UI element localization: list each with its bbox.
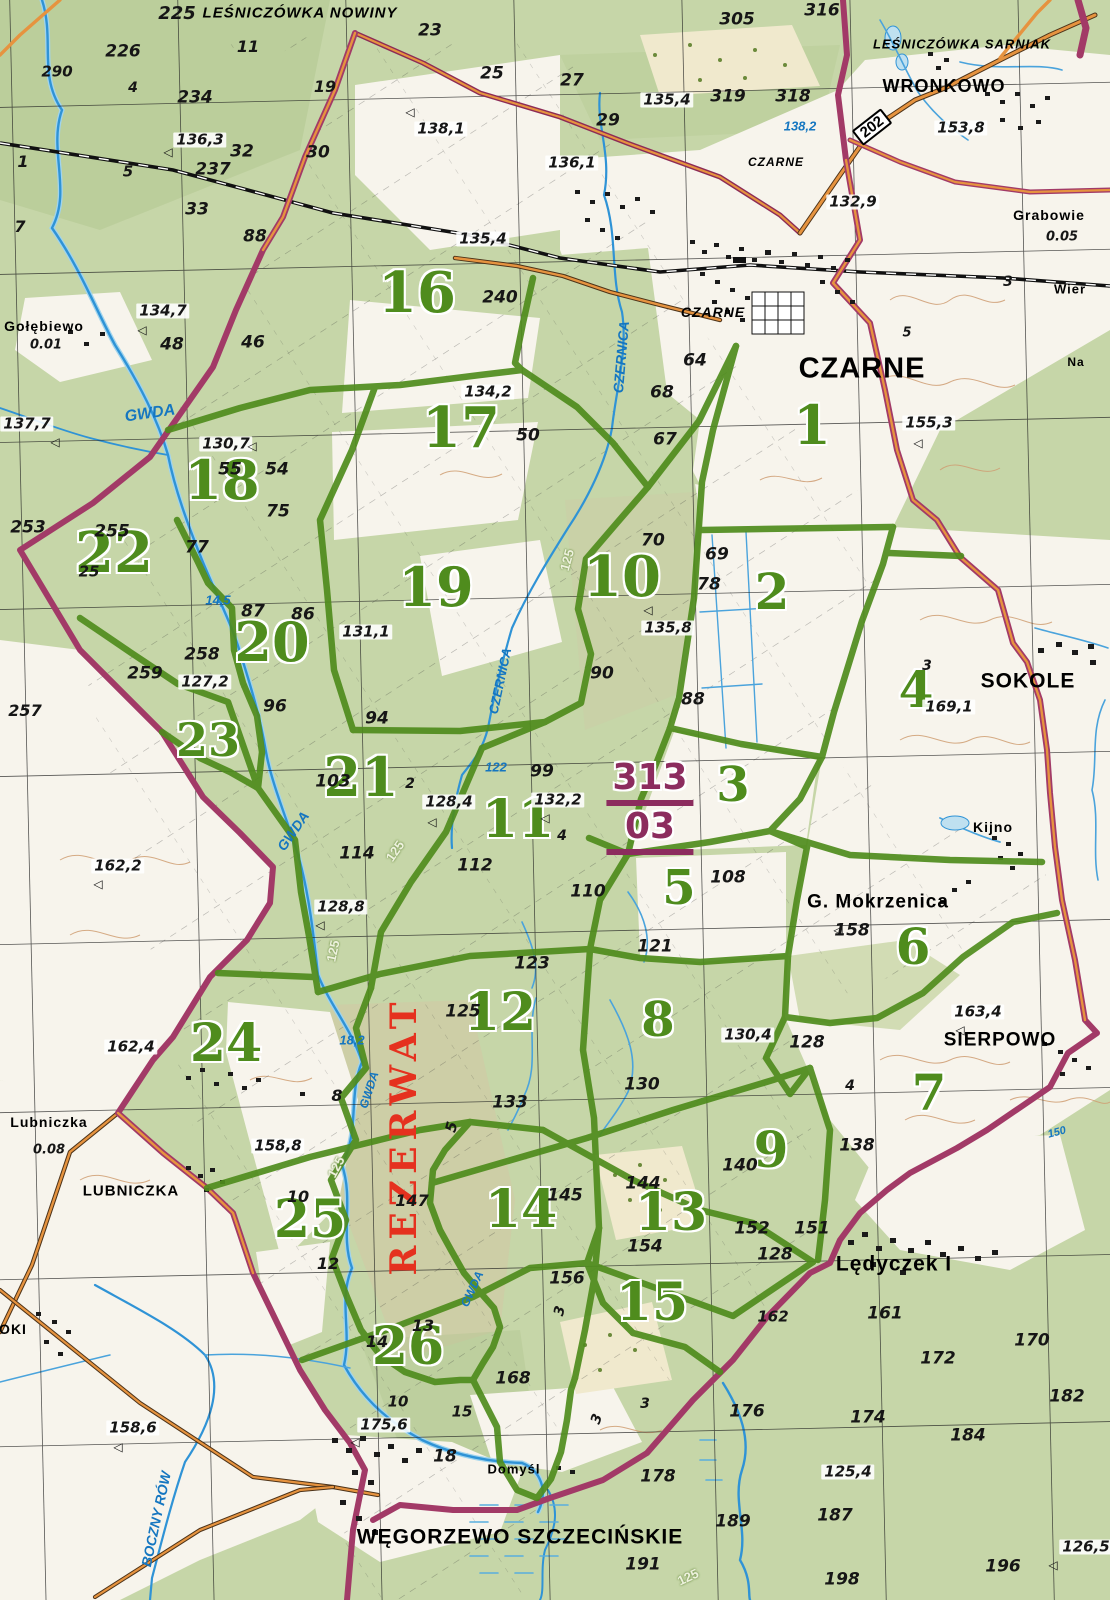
plot-number: 316 [804,3,840,20]
plot-number: 18 [433,1449,457,1466]
plot-number: ◁ [913,437,922,449]
elevation-label: 132,9 [826,195,879,210]
plot-number: 27 [560,73,584,90]
plot-number: 78 [697,577,721,594]
plot-number: 114 [339,846,375,863]
place-name: LEŚNICZÓWKA SARNIAK [873,38,1051,51]
plot-number: 0.05 [1046,231,1078,244]
plot-number: 305 [719,12,755,29]
plot-number: 29 [596,113,620,130]
zone-number: 17 [422,400,500,456]
elevation-label: 128,4 [422,795,475,810]
plot-number: 145 [547,1188,583,1205]
place-name: Gołębiewo [4,319,84,333]
plot-number: ◁ [137,324,146,336]
elevation-label: 135,4 [456,232,509,247]
elevation-label: 136,3 [173,133,226,148]
topographic-map: 1234567891011121314151617181920212223242… [0,0,1110,1600]
zone-number: 5 [662,864,695,912]
plot-number: 123 [514,956,550,973]
plot-number: 70 [641,533,665,550]
plot-number: 257 [8,703,41,719]
elevation-label: 130,7 [199,437,252,452]
elevation-label: 127,2 [178,675,231,690]
plot-number: 174 [850,1410,886,1427]
plot-number: 32 [230,144,254,161]
plot-number: 318 [775,89,811,106]
plot-number: 25 [79,565,100,580]
plot-number: ◁ [113,1441,122,1453]
plot-number: 25 [480,66,504,83]
elevation-label: 138,1 [414,122,467,137]
plot-number: 184 [950,1428,986,1445]
plot-number: 94 [365,711,389,728]
plot-number: 10 [287,1189,309,1205]
plot-number: 151 [794,1221,830,1238]
zone-number: 23 [176,717,240,763]
plot-number: 5 [902,327,911,340]
plot-number: 5 [123,165,133,180]
map-labels-layer: 1234567891011121314151617181920212223242… [0,0,1110,1600]
plot-number: 0.01 [30,339,62,352]
trail-label: 125 [324,939,341,963]
place-name: G. Mokrzenica [807,893,949,912]
plot-number: 99 [530,764,554,781]
plot-number: 96 [263,699,287,716]
plot-number: 130 [624,1077,660,1094]
elevation-label: 158,6 [106,1421,159,1436]
plot-number: 3 [1003,275,1013,289]
plot-number: 170 [1014,1333,1050,1350]
plot-number: 8 [331,1088,342,1104]
district-code-bottom: 03 [606,806,693,855]
road-shield: 202 [852,108,893,146]
elevation-label: 162,4 [104,1040,157,1055]
plot-number: 225 [158,5,196,23]
elevation-label: 131,1 [339,625,392,640]
plot-number: 138 [839,1138,875,1155]
plot-number: 3 [922,659,932,673]
trail-label: 125 [558,548,576,572]
elevation-label: 137,7 [0,417,53,432]
plot-number: ◁ [643,604,652,616]
plot-number: ◁ [955,1024,964,1036]
plot-number: 3 [640,1397,650,1411]
plot-number: 255 [94,524,130,541]
place-name: Lędyczek I [836,1254,952,1275]
plot-number: 12 [317,1256,339,1272]
place-name: CZARNE [748,156,804,168]
place-name: Kijno [973,820,1013,834]
elevation-label: 125,4 [821,1465,874,1480]
elevation-label: 134,2 [461,385,514,400]
water-label: BOCZNY RÓW [139,1470,173,1568]
plot-number: 234 [177,90,213,107]
plot-number: ◁ [833,924,842,936]
plot-number: 4 [557,829,567,843]
plot-number: 90 [590,666,614,683]
water-label: 138,2 [784,120,817,133]
plot-number: ◁ [50,436,59,448]
plot-number: 176 [729,1404,765,1421]
zone-number: 2 [755,567,790,617]
place-name: Lubniczka [10,1115,87,1129]
plot-number: 86 [291,607,315,624]
plot-number: 240 [482,290,518,307]
zone-number: 13 [635,1187,707,1239]
plot-number: 161 [867,1306,903,1323]
plot-number: 5 [443,1120,460,1134]
water-label: GWDA [275,809,312,853]
elevation-label: 128,8 [314,900,367,915]
water-label: 18,2 [339,1034,364,1047]
place-name: WRONKOWO [883,77,1006,95]
plot-number: 4 [845,1079,855,1093]
water-label: 150 [1047,1125,1068,1140]
plot-number: 1 [17,154,28,170]
plot-number: 48 [160,337,184,354]
plot-number: 178 [640,1469,676,1486]
plot-number: 4 [128,81,138,95]
elevation-label: 169,1 [922,700,975,715]
elevation-label: 136,1 [545,156,598,171]
place-name: OKI [0,1322,27,1336]
zone-number: 25 [274,1194,346,1246]
plot-number: 11 [237,39,259,55]
plot-number: 133 [492,1095,528,1112]
plot-number: 46 [241,335,265,352]
place-name: Na [1067,356,1084,368]
plot-number: 77 [185,540,209,557]
water-label: GWDA [459,1269,486,1309]
plot-number: 75 [266,504,290,521]
plot-number: 23 [418,23,442,40]
water-label: CZERNICA [611,320,631,393]
elevation-label: 130,4 [721,1028,774,1043]
plot-number: 154 [627,1239,663,1256]
plot-number: ◁ [247,440,256,452]
plot-number: 103 [315,774,351,791]
elevation-label: 126,5 [1059,1540,1110,1555]
plot-number: 2 [405,777,415,791]
trail-label: 125 [325,1154,347,1179]
plot-number: 67 [653,432,677,449]
plot-number: 33 [185,202,209,219]
place-name: Grabowie [1013,208,1085,222]
place-name: LUBNICZKA [83,1184,180,1199]
elevation-label: 163,4 [951,1005,1004,1020]
zone-number: 3 [716,761,749,809]
zone-number: 8 [641,996,674,1044]
trail-label: 125 [383,838,406,863]
plot-number: 108 [710,870,746,887]
elevation-label: 135,4 [640,93,693,108]
plot-number: 69 [705,547,729,564]
zone-number: 6 [896,922,931,972]
plot-number: 64 [683,353,707,370]
plot-number: 14 [366,1334,388,1350]
plot-number: 196 [985,1559,1021,1576]
place-name: SOKOLE [981,671,1076,692]
plot-number: 30 [306,145,330,162]
plot-number: 125 [445,1004,481,1021]
plot-number: 128 [757,1247,793,1264]
place-name: Domyśl [488,1463,541,1476]
plot-number: 290 [41,65,72,80]
plot-number: ◁ [163,146,172,158]
district-code-top: 313 [606,757,693,806]
plot-number: 258 [184,647,220,664]
plot-number: 140 [722,1158,758,1175]
plot-number: 162 [757,1310,788,1325]
plot-number: 68 [650,385,674,402]
plot-number: 128 [789,1035,825,1052]
plot-number: 182 [1049,1389,1085,1406]
zone-number: 9 [754,1125,789,1175]
zone-number: 10 [583,549,661,605]
place-name: CZARNE [681,305,745,319]
plot-number: 55 [218,462,242,479]
plot-number: 15 [452,1405,473,1420]
place-name: WĘGORZEWO SZCZECIŃSKIE [357,1527,684,1548]
plot-number: 13 [412,1318,434,1334]
plot-number: 152 [734,1221,770,1238]
place-name: CZARNE [799,355,926,384]
plot-number: 147 [395,1193,428,1209]
elevation-label: 134,7 [136,304,189,319]
elevation-label: 158,8 [251,1139,304,1154]
plot-number: 319 [710,89,746,106]
plot-number: ◁ [540,812,549,824]
plot-number: 88 [681,692,705,709]
plot-number: 237 [195,162,231,179]
plot-number: 3 [552,1304,568,1317]
plot-number: ◁ [1048,1559,1057,1571]
plot-number: 0.08 [33,1144,65,1157]
water-label: CZERNICA [487,647,514,715]
plot-number: ◁ [315,919,324,931]
plot-number: 156 [549,1271,585,1288]
plot-number: 189 [715,1514,751,1531]
plot-number: ◁ [427,816,436,828]
water-label: 122 [485,761,507,774]
trail-label: 125 [675,1567,700,1588]
zone-number: 16 [378,265,456,321]
plot-number: 110 [570,884,606,901]
plot-number: 226 [105,44,141,61]
plot-number: 87 [241,604,265,621]
plot-number: ◁ [350,1436,359,1448]
plot-number: 10 [388,1395,409,1410]
plot-number: 172 [920,1351,956,1368]
zone-number: 1 [793,398,831,452]
plot-number: 253 [10,520,46,537]
elevation-label: 132,2 [531,793,584,808]
plot-number: 191 [625,1557,661,1574]
plot-number: 50 [516,428,540,445]
elevation-label: 153,8 [934,121,987,136]
plot-number: 54 [265,462,289,479]
elevation-label: 135,8 [641,621,694,636]
water-label: GWDA [124,403,176,426]
plot-number: 168 [495,1371,531,1388]
elevation-label: 162,2 [91,859,144,874]
elevation-label: 155,3 [902,416,955,431]
zone-number: 24 [190,1018,262,1070]
plot-number: 121 [637,939,673,956]
plot-number: 198 [824,1572,860,1589]
plot-number: 7 [14,219,25,235]
district-code: 313 03 [606,757,693,855]
plot-number: 19 [314,79,336,95]
water-label: GWDA [357,1070,380,1110]
plot-number: ◁ [405,106,414,118]
plot-number: 259 [127,666,163,683]
place-name: LEŚNICZÓWKA NOWINY [203,6,398,21]
water-label: 14,5 [205,594,230,607]
zone-number: 7 [912,1068,947,1118]
place-name: Wier [1054,283,1086,296]
plot-number: 3 [589,1412,605,1426]
zone-number: 15 [616,1277,688,1329]
elevation-label: 175,6 [357,1418,410,1433]
zone-number: 19 [398,560,473,614]
plot-number: 144 [625,1176,661,1193]
plot-number: 187 [817,1508,853,1525]
reserve-label: REZERWAT [386,996,422,1275]
plot-number: 112 [457,858,493,875]
plot-number: ◁ [93,878,102,890]
plot-number: 88 [243,229,267,246]
